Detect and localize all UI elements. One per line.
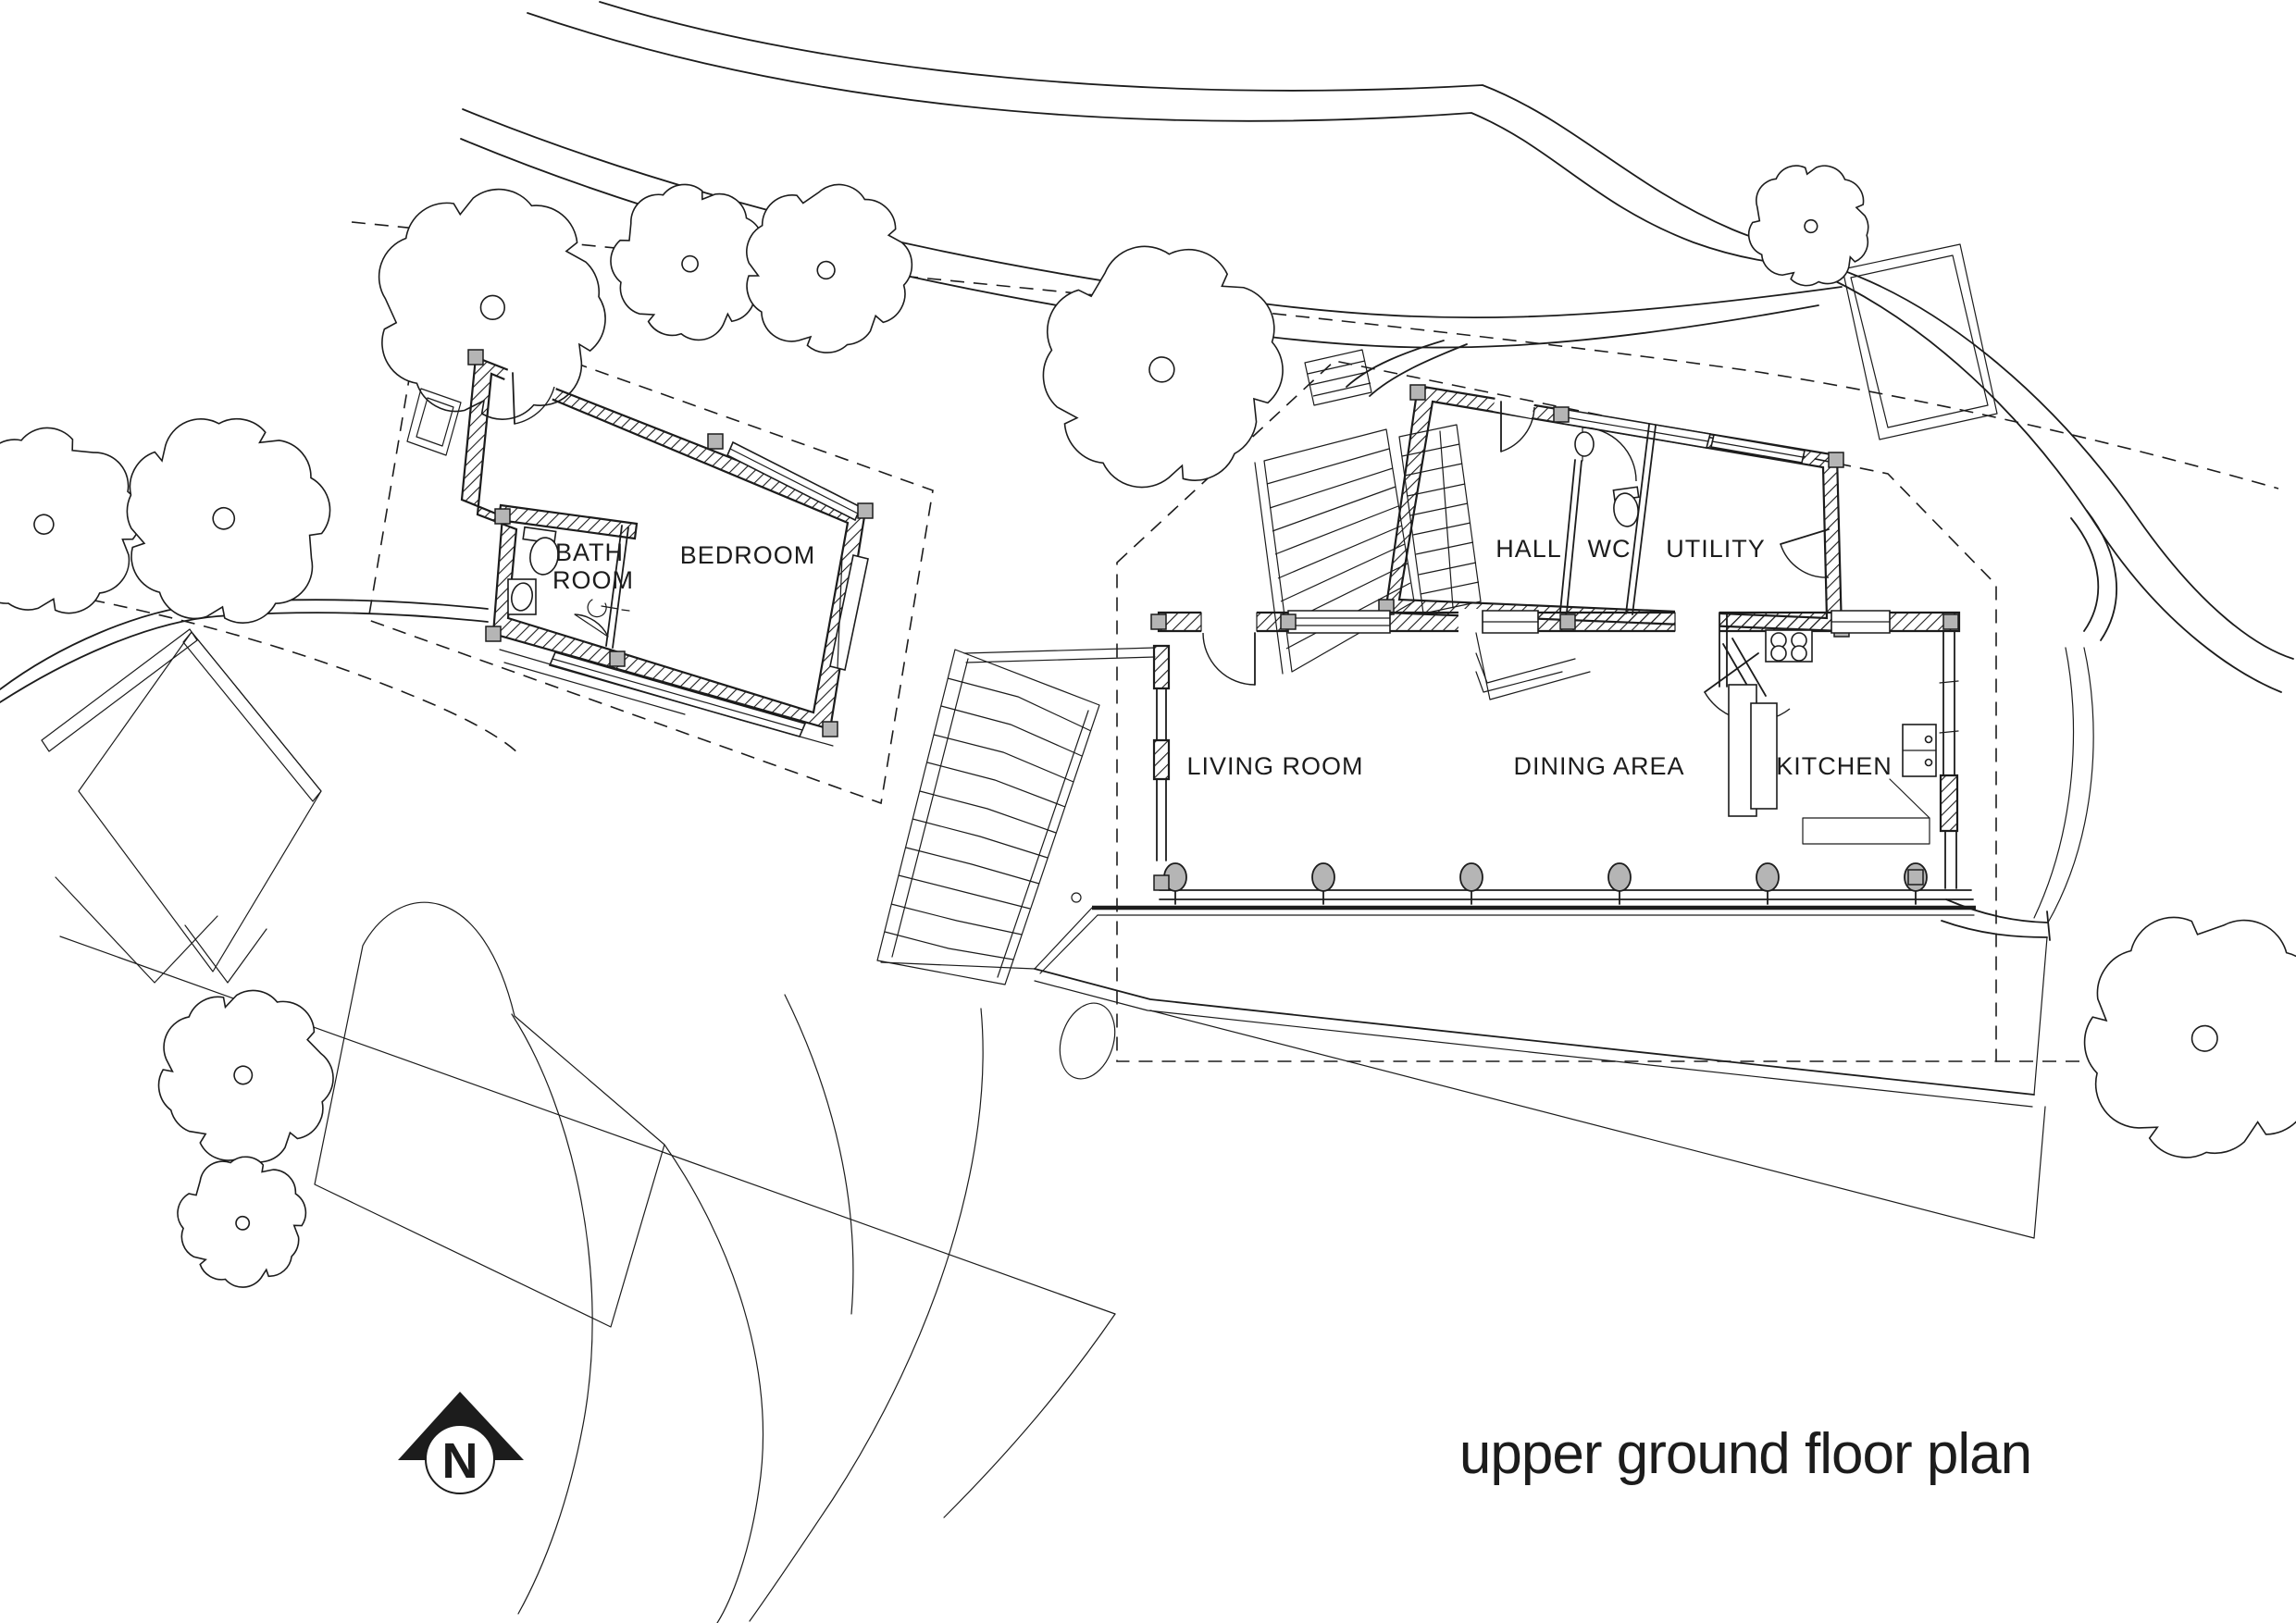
window bbox=[1831, 611, 1890, 633]
dining-area-label: DINING AREA bbox=[1513, 752, 1684, 780]
tree-icon bbox=[999, 202, 1330, 532]
balcony bbox=[1035, 908, 2047, 1238]
lower-terrace-outline bbox=[315, 902, 664, 1327]
stove-icon bbox=[1766, 630, 1812, 662]
structural-columns bbox=[1164, 863, 1927, 891]
glazing-mullions bbox=[1175, 886, 1916, 904]
north-letter: N bbox=[442, 1433, 478, 1489]
hall-label: HALL bbox=[1496, 535, 1562, 563]
bedroom-label: BEDROOM bbox=[680, 541, 816, 569]
tree-icon bbox=[93, 390, 354, 653]
kitchen-label: KITCHEN bbox=[1776, 752, 1893, 780]
garden-cascade-stair bbox=[877, 650, 1099, 985]
garden-paths bbox=[0, 511, 2116, 940]
west-terrace bbox=[881, 648, 1155, 1086]
room-labels: BATH ROOM BEDROOM HALL WC UTILITY LIVING… bbox=[552, 535, 1893, 780]
shower-symbol-icon bbox=[588, 600, 629, 617]
kitchen-counter bbox=[1803, 779, 1930, 844]
floor-plan-sheet: BATH ROOM BEDROOM HALL WC UTILITY LIVING… bbox=[0, 0, 2296, 1623]
hall-wing bbox=[1379, 385, 1849, 637]
living-room-label: LIVING ROOM bbox=[1186, 752, 1363, 780]
tree-icon bbox=[732, 174, 925, 365]
bathroom-label-line2: ROOM bbox=[552, 566, 634, 594]
bathroom-label-line1: BATH bbox=[555, 539, 624, 566]
west-patio bbox=[42, 629, 321, 972]
wc-toilet-icon bbox=[1612, 487, 1641, 527]
sink-icon bbox=[508, 579, 536, 614]
stairwell-landing bbox=[1476, 633, 1590, 700]
top-right-outbuilding bbox=[1843, 244, 1997, 440]
wc-sink-icon bbox=[1575, 432, 1594, 456]
tree-icon bbox=[1737, 150, 1884, 299]
north-arrow: N bbox=[398, 1392, 524, 1493]
wc-label: WC bbox=[1588, 535, 1632, 563]
window bbox=[1288, 611, 1390, 633]
tree-icon bbox=[155, 1133, 333, 1311]
tree-icon bbox=[2075, 907, 2296, 1169]
door-gap bbox=[1675, 609, 1727, 687]
drawing-title: upper ground floor plan bbox=[1459, 1422, 2031, 1486]
utility-label: UTILITY bbox=[1666, 535, 1766, 563]
tree-icon bbox=[379, 190, 605, 420]
site-roads bbox=[461, 2, 2293, 692]
fridge-icon bbox=[1903, 725, 1936, 776]
floor-plan-drawing: BATH ROOM BEDROOM HALL WC UTILITY LIVING… bbox=[0, 0, 2296, 1623]
window bbox=[1483, 611, 1538, 633]
trees bbox=[0, 150, 2296, 1310]
kitchen-island bbox=[1729, 685, 1777, 816]
